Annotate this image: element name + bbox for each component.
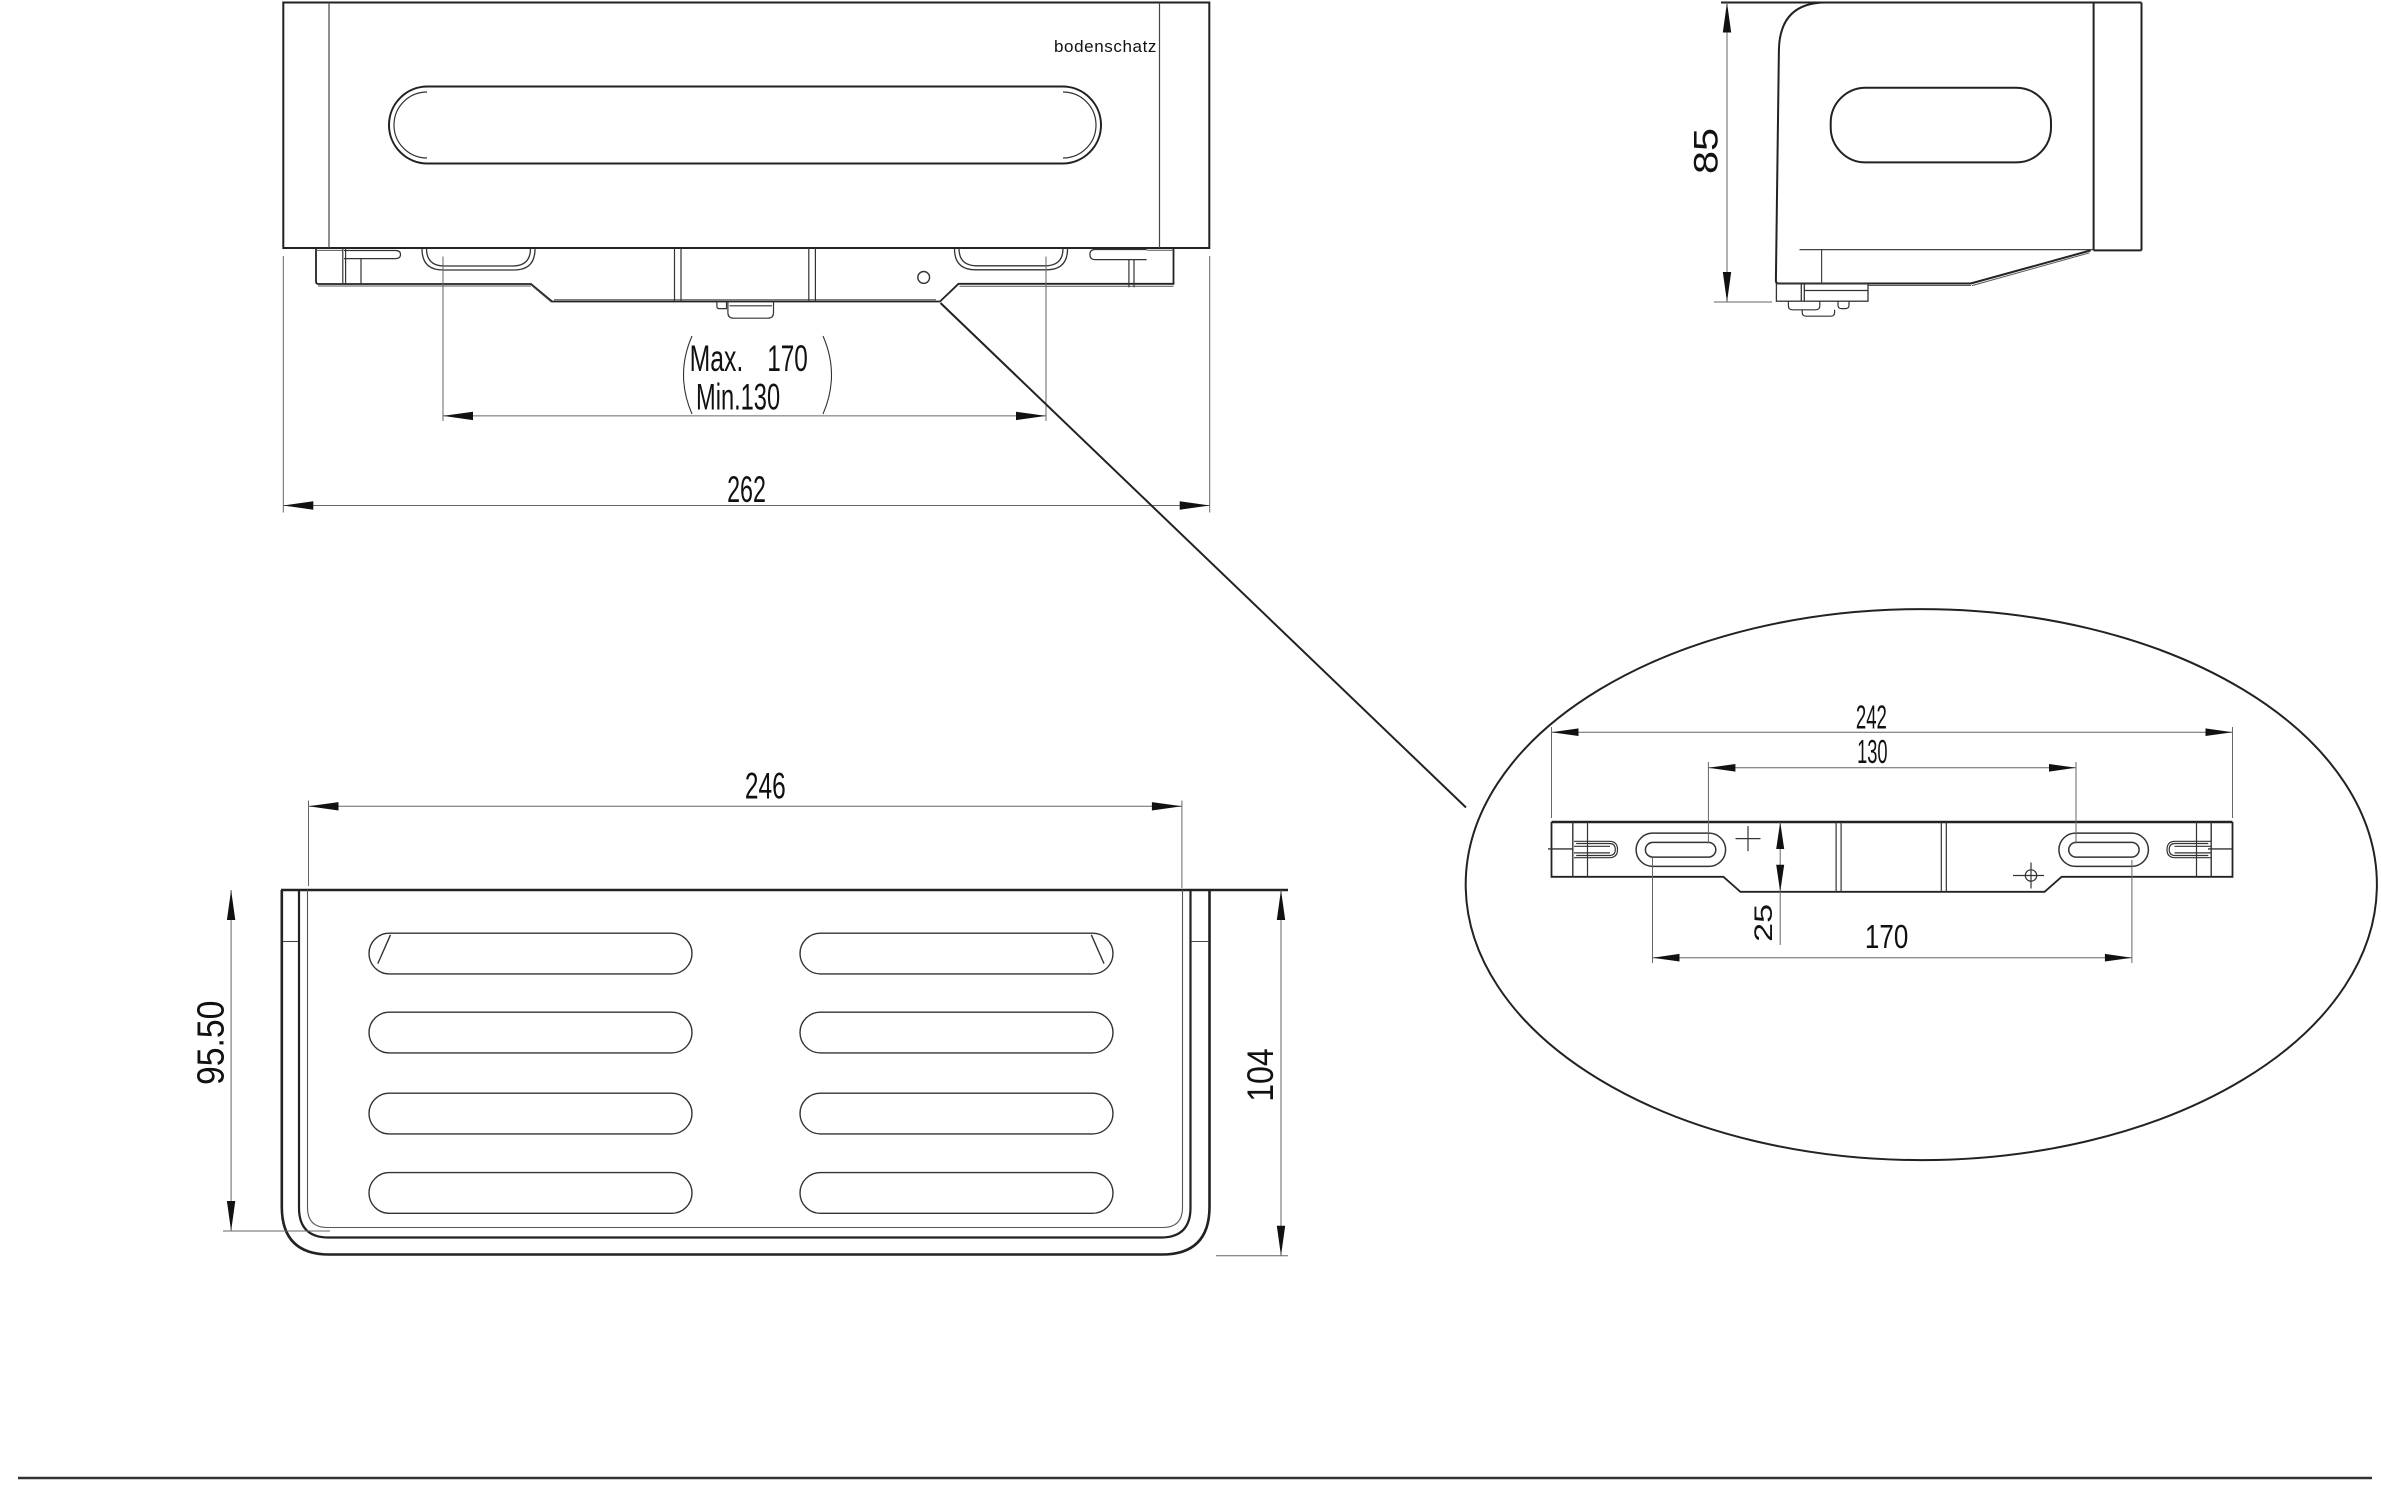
svg-text:bodenschatz: bodenschatz [1054,37,1157,56]
svg-text:85: 85 [1688,128,1726,174]
svg-text:95.50: 95.50 [191,1001,233,1085]
svg-text:170: 170 [767,338,808,379]
svg-text:Min.130: Min.130 [696,377,780,418]
svg-text:Max.: Max. [690,338,744,379]
svg-text:104: 104 [1240,1048,1281,1102]
svg-text:242: 242 [1856,698,1887,735]
svg-text:246: 246 [745,766,786,807]
svg-text:262: 262 [727,469,766,510]
svg-text:170: 170 [1865,918,1908,955]
svg-text:130: 130 [1857,733,1888,770]
svg-text:25: 25 [1750,904,1778,942]
